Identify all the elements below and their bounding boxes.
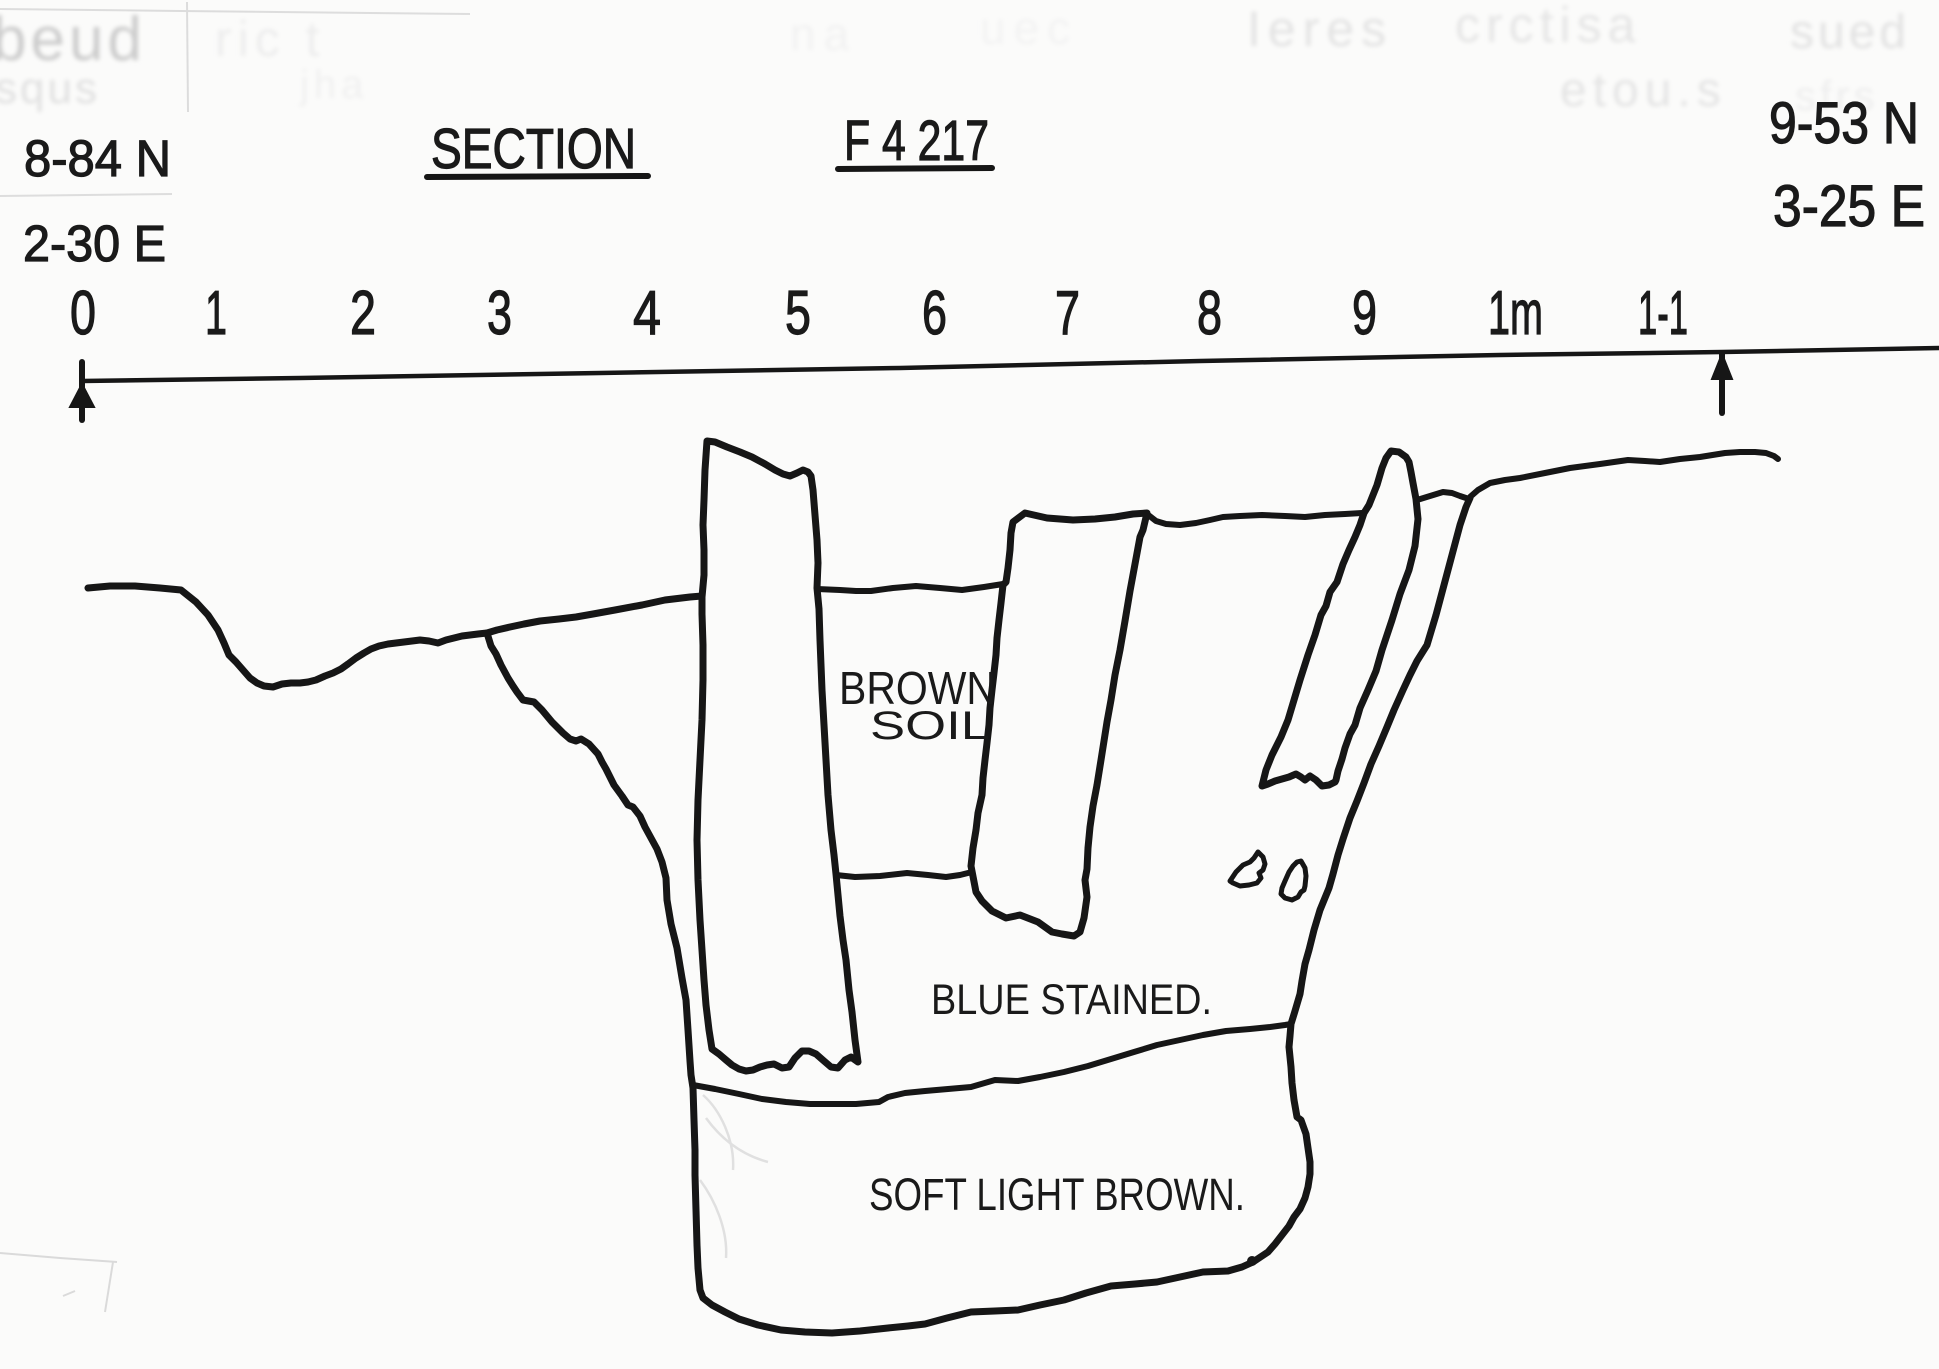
svg-text:1: 1 <box>205 279 227 348</box>
svg-text:6: 6 <box>922 279 947 348</box>
svg-text:SOFT LIGHT BROWN.: SOFT LIGHT BROWN. <box>869 1169 1245 1220</box>
svg-text:1-1: 1-1 <box>1638 279 1688 348</box>
svg-text:crctisa: crctisa <box>1455 0 1641 53</box>
svg-text:ric t: ric t <box>215 11 326 67</box>
svg-text:9: 9 <box>1352 279 1377 348</box>
svg-text:SECTION: SECTION <box>431 117 636 181</box>
svg-text:jha: jha <box>299 63 368 107</box>
svg-text:2: 2 <box>350 279 376 348</box>
svg-text:1m: 1m <box>1488 279 1543 348</box>
svg-text:F 4 217: F 4 217 <box>844 109 989 173</box>
svg-text:2-30 E: 2-30 E <box>23 215 166 272</box>
svg-text:uec: uec <box>980 2 1078 54</box>
svg-text:na: na <box>790 8 857 60</box>
svg-text:3: 3 <box>487 279 512 348</box>
svg-text:3-25 E: 3-25 E <box>1773 174 1925 239</box>
svg-text:9-53 N: 9-53 N <box>1769 91 1919 156</box>
svg-text:8: 8 <box>1197 279 1222 348</box>
svg-text:squs: squs <box>0 64 100 113</box>
svg-text:0: 0 <box>70 279 96 348</box>
svg-text:SOIL: SOIL <box>870 704 990 748</box>
svg-text:etou.s: etou.s <box>1560 64 1727 117</box>
svg-text:5: 5 <box>785 279 811 348</box>
svg-text:4: 4 <box>633 279 661 348</box>
svg-text:7: 7 <box>1055 279 1080 348</box>
svg-text:BLUE STAINED.: BLUE STAINED. <box>931 976 1212 1024</box>
svg-text:sued: sued <box>1790 6 1910 59</box>
svg-text:Ieres: Ieres <box>1247 1 1393 57</box>
svg-text:8-84 N: 8-84 N <box>24 130 171 187</box>
